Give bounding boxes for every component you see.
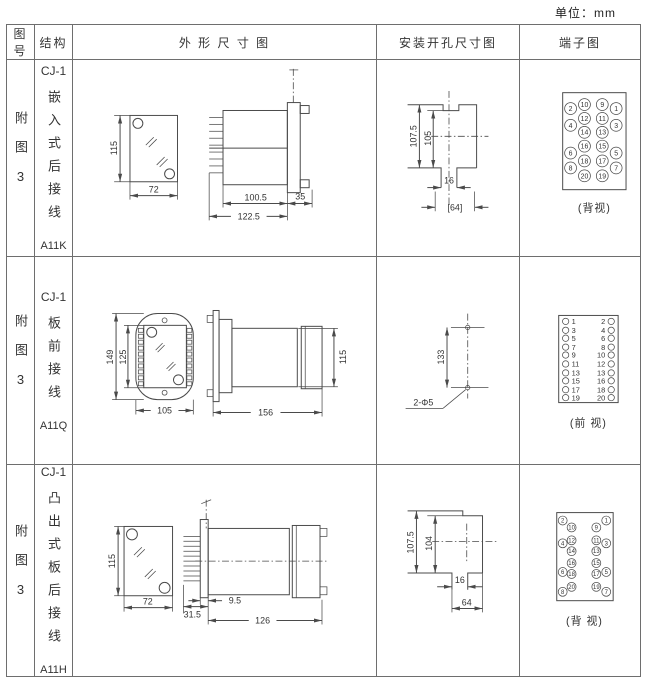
side-view: 9.5 31.5 126 [183, 500, 328, 626]
fig-cell: 附图3 [7, 257, 35, 465]
terminal-number: 5 [614, 150, 618, 157]
terminal-strip-left [138, 328, 143, 385]
terminal-number: 18 [568, 572, 575, 578]
dim-inner-height: 125 [117, 349, 127, 364]
terminal-number: 12 [568, 538, 575, 544]
terminal-number: 15 [593, 561, 600, 567]
terminal-number: 16 [580, 143, 588, 150]
fig-number: 附图3 [11, 314, 30, 403]
structure-model: A11K [40, 240, 66, 252]
terminal-number: 12 [597, 359, 605, 368]
terminal-cell: 2 4 6 8 10 12 14 16 18 20 9 11 1 [520, 60, 641, 257]
view-label: (背 视) [565, 613, 602, 627]
terminal-circles: 2 4 6 8 10 12 14 16 18 20 9 11 1 [564, 98, 621, 181]
outline-drawing-a11k: 115 72 [74, 61, 376, 256]
terminal-number: 9 [594, 525, 598, 531]
dim-slot-width: 16 [454, 575, 464, 585]
fig-number: 附图3 [11, 524, 30, 613]
terminal-number: 1 [614, 105, 618, 112]
fig-cell: 附图3 [7, 465, 35, 677]
view-label: (背视) [577, 200, 610, 214]
dim-length: 156 [258, 407, 273, 417]
terminal-number: 19 [598, 173, 606, 180]
terminal-number: 14 [568, 549, 575, 555]
terminal-circles: 2 4 6 8 10 12 14 16 18 20 9 11 1 [558, 516, 610, 596]
outline-cell: 115 72 [73, 60, 377, 257]
terminal-strip-right [186, 328, 191, 385]
dim-body-length: 126 [255, 615, 270, 625]
dim-front-height: 115 [107, 554, 117, 568]
structure-series: CJ-1 [41, 465, 66, 479]
terminal-number: 18 [580, 158, 588, 165]
terminal-number: 4 [561, 541, 565, 547]
view-label: (前 视) [569, 415, 606, 429]
spec-row-a11q: 附图3 CJ-1 板前接线 A11Q [7, 257, 641, 465]
dim-hole-spacing: 133 [436, 349, 446, 364]
terminal-number: 16 [568, 561, 575, 567]
outline-cell: 115 72 [73, 465, 377, 677]
mounting-drawing-a11q: 133 2-Φ5 [378, 258, 519, 464]
terminal-circles: 1 3 5 7 9 11 13 15 17 19 2 4 6 [562, 317, 614, 402]
outline-cell: 149 125 105 [73, 257, 377, 465]
terminal-number: 17 [598, 158, 606, 165]
mounting-drawing-a11k: 107.5 105 16 [64] [378, 61, 519, 256]
spec-table: 图号 结构 外 形 尺 寸 图 安装开孔尺寸图 端子图 附图3 CJ-1 嵌入式… [6, 24, 641, 677]
terminal-number: 3 [614, 122, 618, 129]
dim-body-depth: 100.5 [244, 192, 266, 202]
terminal-number: 10 [597, 350, 605, 359]
terminal-number: 10 [580, 102, 588, 109]
terminal-number: 15 [598, 143, 606, 150]
terminal-number: 19 [571, 393, 579, 402]
dim-total-depth: 122.5 [237, 211, 259, 221]
dim-front-height: 115 [109, 140, 119, 154]
terminal-number: 10 [568, 525, 575, 531]
mounting-cell: 107.5 104 16 64 [377, 465, 520, 677]
col-header-mounting: 安装开孔尺寸图 [377, 25, 520, 60]
col-header-fig: 图号 [7, 25, 35, 60]
mounting-cell: 107.5 105 16 [64] [377, 60, 520, 257]
terminal-number: 11 [571, 359, 579, 368]
terminal-number: 20 [597, 393, 605, 402]
structure-model: A11H [40, 664, 67, 676]
terminal-number: 19 [593, 585, 600, 591]
terminal-number: 6 [568, 150, 572, 157]
dim-side-height: 115 [337, 349, 347, 363]
terminal-number: 5 [571, 333, 575, 342]
structure-model: A11Q [40, 420, 67, 432]
terminal-number: 7 [604, 590, 607, 596]
dim-width: 105 [157, 405, 172, 415]
side-view: 156 115 [207, 310, 348, 417]
fig-cell: 附图3 [7, 60, 35, 257]
col-header-terminal: 端子图 [520, 25, 641, 60]
terminal-number: 2 [568, 105, 572, 112]
terminal-drawing-a11q: 1 3 5 7 9 11 13 15 17 19 2 4 6 [521, 258, 640, 464]
col-header-structure: 结构 [35, 25, 73, 60]
dim-slot-width: 16 [444, 175, 454, 185]
terminal-number: 12 [580, 115, 588, 122]
mounting-drawing-a11h: 107.5 104 16 64 [378, 474, 519, 667]
terminal-number: 14 [580, 129, 588, 136]
terminal-number: 1 [604, 518, 607, 524]
terminal-number: 6 [561, 570, 565, 576]
terminal-number: 15 [571, 376, 579, 385]
terminal-number: 8 [568, 165, 572, 172]
terminal-number: 9 [571, 350, 575, 359]
terminal-number: 5 [604, 570, 608, 576]
dim-gap: 9.5 [228, 596, 240, 606]
terminal-number: 20 [580, 173, 588, 180]
outline-drawing-a11h: 115 72 [74, 474, 376, 667]
spec-row-a11h: 附图3 CJ-1 凸出式板后接线 A11H [7, 465, 641, 677]
terminal-drawing-a11h: 2 4 6 8 10 12 14 16 18 20 9 11 1 [521, 474, 640, 667]
spec-sheet-page: 单位：mm 图号 结构 外 形 尺 寸 图 安装开孔尺寸图 端子图 附图3 CJ… [0, 0, 647, 648]
structure-series: CJ-1 [41, 290, 66, 304]
dim-outer-height: 107.5 [405, 531, 415, 553]
spec-row-a11k: 附图3 CJ-1 嵌入式后接线 A11K [7, 60, 641, 257]
terminal-number: 13 [598, 129, 606, 136]
terminal-cell: 2 4 6 8 10 12 14 16 18 20 9 11 1 [520, 465, 641, 677]
terminal-number: 11 [593, 538, 599, 544]
header-row: 图号 结构 外 形 尺 寸 图 安装开孔尺寸图 端子图 [7, 25, 641, 60]
structure-type: 板前接线 [44, 316, 63, 408]
terminal-number: 6 [601, 333, 605, 342]
terminal-number: 13 [593, 549, 600, 555]
terminal-number: 17 [593, 572, 600, 578]
mounting-cell: 133 2-Φ5 [377, 257, 520, 465]
terminal-cell: 1 3 5 7 9 11 13 15 17 19 2 4 6 [520, 257, 641, 465]
outline-drawing-a11q: 149 125 105 [74, 258, 376, 464]
front-view: 149 125 105 [105, 313, 193, 415]
structure-series: CJ-1 [41, 64, 66, 78]
dim-inner-height: 104 [424, 536, 434, 551]
dim-panel-width: 64 [461, 598, 471, 608]
front-view: 115 72 [109, 115, 177, 199]
terminal-number: 9 [600, 102, 604, 109]
structure-cell: CJ-1 嵌入式后接线 A11K [35, 60, 73, 257]
dim-outer-height: 107.5 [408, 125, 418, 147]
terminal-number: 7 [614, 165, 618, 172]
dim-inner-height: 105 [423, 130, 433, 145]
dim-outer-height: 149 [105, 349, 115, 364]
terminal-drawing-a11k: 2 4 6 8 10 12 14 16 18 20 9 11 1 [521, 61, 640, 256]
structure-type: 嵌入式后接线 [44, 90, 63, 228]
structure-cell: CJ-1 凸出式板后接线 A11H [35, 465, 73, 677]
terminal-number: 4 [568, 122, 572, 129]
dim-front-width: 72 [148, 184, 158, 194]
dim-front-width: 72 [142, 597, 152, 607]
front-view: 115 72 [107, 526, 172, 611]
terminal-number: 16 [597, 376, 605, 385]
terminal-number: 3 [604, 541, 608, 547]
dim-panel-width: [64] [447, 202, 462, 212]
terminal-number: 1 [571, 317, 575, 326]
terminal-number: 11 [598, 115, 605, 122]
terminal-number: 2 [601, 317, 605, 326]
terminal-number: 20 [568, 585, 575, 591]
structure-type: 凸出式板后接线 [44, 491, 63, 652]
dim-flange-depth: 35 [295, 191, 305, 201]
unit-label: 单位：mm [6, 2, 642, 24]
fig-number: 附图3 [11, 111, 30, 200]
terminal-number: 2 [561, 518, 564, 524]
dim-pin-depth: 31.5 [183, 610, 200, 620]
col-header-outline: 外 形 尺 寸 图 [73, 25, 377, 60]
structure-cell: CJ-1 板前接线 A11Q [35, 257, 73, 465]
hole-spec-label: 2-Φ5 [413, 397, 433, 407]
side-view: 100.5 122.5 35 [209, 68, 312, 220]
terminal-number: 8 [561, 590, 565, 596]
